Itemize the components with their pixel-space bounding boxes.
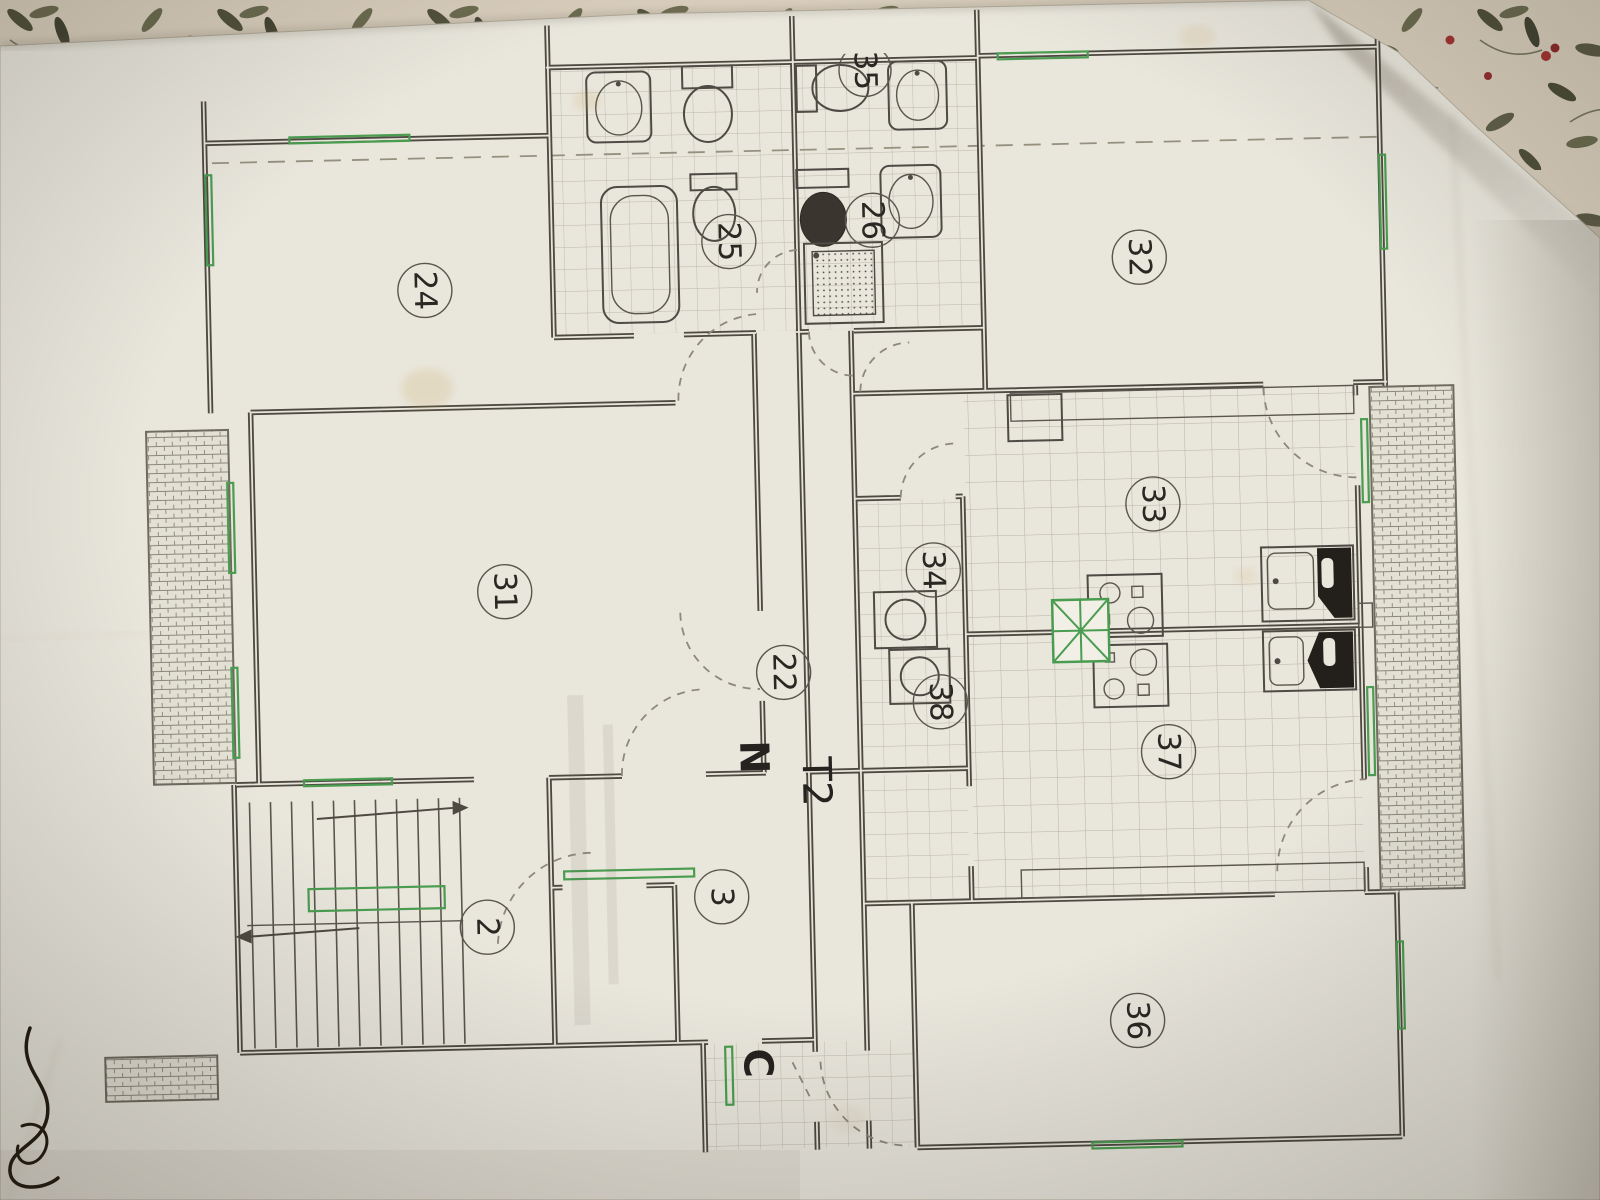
shower bbox=[804, 242, 884, 324]
svg-text:37: 37 bbox=[1150, 732, 1187, 772]
letter-c-label: C bbox=[734, 1048, 781, 1078]
svg-text:33: 33 bbox=[1134, 484, 1171, 524]
svg-text:35: 35 bbox=[847, 50, 884, 90]
svg-text:22: 22 bbox=[765, 652, 802, 692]
photo-of-floor-plan: 24 25 26 35 32 33 34 31 22 38 37 2 3 36 … bbox=[0, 0, 1600, 1200]
svg-text:2: 2 bbox=[469, 917, 505, 938]
north-label: N bbox=[730, 740, 777, 775]
svg-text:36: 36 bbox=[1119, 1000, 1156, 1040]
svg-text:34: 34 bbox=[915, 550, 952, 590]
svg-text:31: 31 bbox=[486, 572, 523, 612]
balcony-right bbox=[1369, 385, 1464, 890]
unit-type-label: T2 bbox=[793, 755, 840, 807]
balcony-bottom-left bbox=[105, 1055, 218, 1102]
balcony-left bbox=[146, 430, 236, 785]
ventilation-shaft bbox=[1052, 599, 1109, 662]
svg-text:38: 38 bbox=[922, 682, 959, 722]
svg-text:3: 3 bbox=[703, 887, 739, 908]
svg-text:26: 26 bbox=[854, 200, 891, 240]
svg-text:25: 25 bbox=[710, 221, 747, 261]
svg-text:32: 32 bbox=[1121, 237, 1158, 277]
svg-text:24: 24 bbox=[406, 270, 443, 310]
